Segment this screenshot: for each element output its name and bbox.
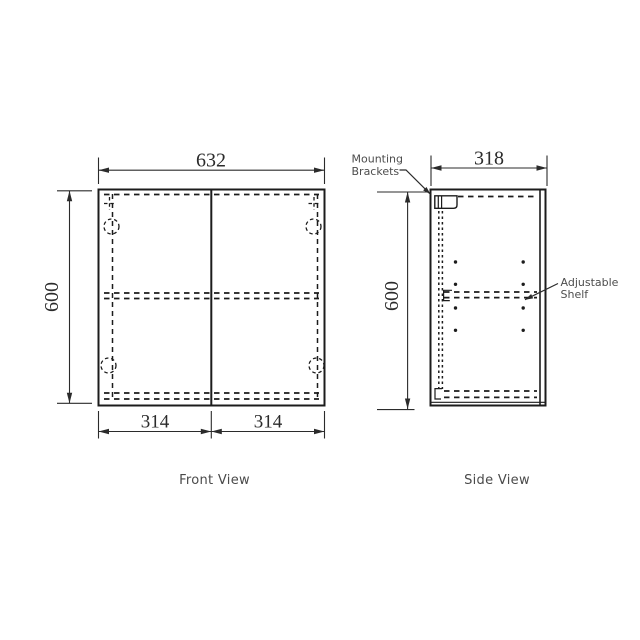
side-back-panel-hidden-lines — [439, 211, 443, 389]
front-height-dimension-value: 600 — [41, 282, 63, 312]
side-shelf-pin-holes — [454, 260, 525, 332]
mounting-brackets-callout: Mounting Brackets — [352, 152, 431, 194]
side-height-dimension-value: 600 — [381, 281, 403, 311]
side-depth-dimension-value: 318 — [474, 147, 504, 169]
adjustable-shelf-callout: Adjustable Shelf — [525, 276, 619, 301]
front-hinge-cup-circles — [101, 219, 324, 373]
side-view-caption: Side View — [464, 473, 530, 488]
front-view-caption: Front View — [179, 473, 250, 488]
side-mounting-bracket — [435, 196, 457, 209]
dimension-front-height: 600 — [41, 191, 92, 403]
adjustable-shelf-leader-line — [525, 284, 558, 300]
mounting-brackets-label-line1: Mounting — [352, 152, 404, 165]
side-bottom-hidden-lines — [435, 389, 537, 399]
dimension-front-doors: 314 314 — [99, 411, 325, 439]
front-width-dimension-value: 632 — [196, 150, 226, 172]
side-adjustable-shelf-hidden-lines — [444, 290, 537, 300]
side-view: 318 600 Side View — [377, 147, 547, 488]
dimension-side-height: 600 — [377, 192, 429, 410]
dimension-front-width: 632 — [99, 150, 325, 185]
front-right-door-dimension-value: 314 — [254, 412, 283, 433]
front-view: 632 600 314 314 Front View — [41, 150, 325, 489]
side-bottom-end-bracket — [435, 389, 442, 399]
front-left-door-dimension-value: 314 — [141, 412, 170, 433]
mounting-brackets-label-line2: Brackets — [352, 165, 400, 178]
mounting-brackets-leader-line — [400, 170, 431, 194]
adjustable-shelf-label-line2: Shelf — [561, 288, 590, 301]
dimension-side-depth: 318 — [431, 147, 547, 186]
technical-drawing-canvas: 632 600 314 314 Front View — [0, 0, 640, 640]
cabinet-technical-drawing: 632 600 314 314 Front View — [0, 0, 640, 640]
